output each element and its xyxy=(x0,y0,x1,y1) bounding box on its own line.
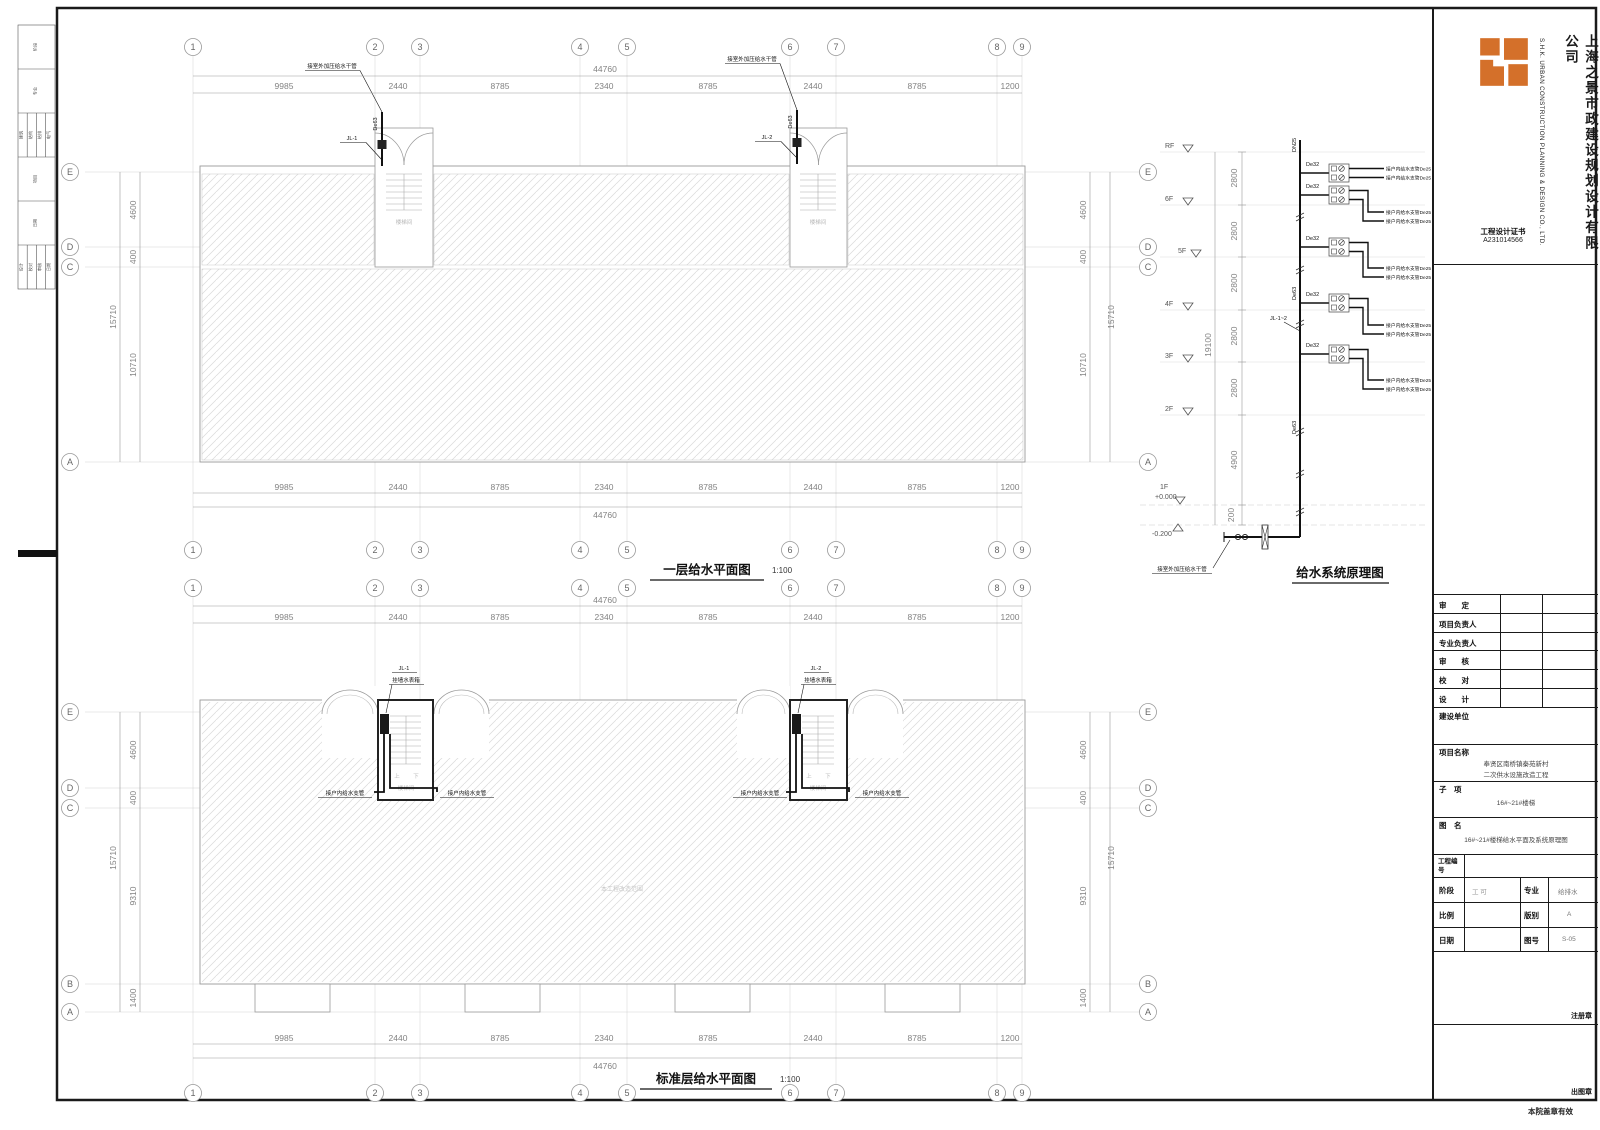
company-name-en: S.H.K. URBAN CONSTRUCTION PLANNING & DES… xyxy=(1538,38,1545,254)
cell-label: 图号 xyxy=(1524,935,1539,946)
major-value: 给排水 xyxy=(1558,886,1578,896)
section-label: 项目名称 xyxy=(1439,747,1469,758)
section-label: 图 名 xyxy=(1439,820,1462,831)
title-block: S.H.K. URBAN CONSTRUCTION PLANNING & DES… xyxy=(1432,8,1598,1100)
meter-box xyxy=(792,714,801,734)
dim: 8785 xyxy=(699,482,718,492)
dim: 400 xyxy=(1078,791,1088,805)
issue-stamp-area: 出图章 xyxy=(1434,1025,1598,1100)
section-label: 工程编号 xyxy=(1438,857,1462,875)
grid-label: 7 xyxy=(833,1088,838,1098)
client-section: 建设单位 xyxy=(1434,708,1598,745)
unit-branch-label: 接户内给水支管De25 xyxy=(1386,274,1431,281)
unit-branch-label: 接户内给水支管De25 xyxy=(1386,166,1431,173)
grid-label: A xyxy=(1145,457,1151,467)
row-label: 设 计 xyxy=(1439,694,1469,705)
scope-note: 本工程改造范围 xyxy=(601,885,643,893)
strip-cell: 阶段 xyxy=(32,42,39,51)
subitem-section: 子 项 16#~21#楼梯 xyxy=(1434,782,1598,818)
riser-tag: JL-2 xyxy=(811,666,822,672)
dim: 4600 xyxy=(1078,740,1088,759)
dim: 1400 xyxy=(128,988,138,1007)
dim-total: 15710 xyxy=(1106,305,1116,329)
strip-cell: 日期 xyxy=(33,219,39,227)
stair-up: 上 xyxy=(806,772,812,780)
branch-label: 接户内给水支管 xyxy=(448,789,487,797)
grid-label: 8 xyxy=(994,583,999,593)
floor-label: 1F xyxy=(1160,484,1168,491)
section-label: 子 项 xyxy=(1439,784,1462,795)
grid-label: 5 xyxy=(624,42,629,52)
grid-label: D xyxy=(67,242,74,252)
stair-up: 上 xyxy=(394,772,400,780)
branch-label: 接户内给水支管 xyxy=(326,789,365,797)
unit-branch-label: 接户内给水支管De25 xyxy=(1386,322,1431,329)
dim: 8785 xyxy=(491,81,510,91)
branch-pipe-label: De32 xyxy=(1306,292,1319,298)
dim: 9310 xyxy=(128,886,138,905)
schematic-title: 给水系统原理图 xyxy=(1296,565,1384,580)
row-label: 审 核 xyxy=(1439,656,1469,667)
schematic: RF 6F 5F 4F 3F 2F 1F +0.000 -0.200 2 xyxy=(1140,138,1431,583)
strip-cell: 电气 xyxy=(45,130,51,139)
grid-label: 4 xyxy=(577,42,582,52)
branch-label: 接户内给水支管 xyxy=(863,789,902,797)
drawing-name-value: 16#~21#楼梯给水平面及系统原理图 xyxy=(1434,834,1598,844)
validity-note: 本院盖章有效 xyxy=(1528,1106,1573,1117)
stair-label: 楼梯间 xyxy=(396,218,413,226)
dim-total: 19100 xyxy=(1203,333,1213,357)
meter-box xyxy=(380,714,389,734)
row-label: 专业负责人 xyxy=(1439,638,1477,649)
dim: 2440 xyxy=(804,81,823,91)
dim: 2440 xyxy=(389,81,408,91)
dim: 1200 xyxy=(1001,612,1020,622)
row-label: 审 定 xyxy=(1439,600,1469,611)
dim: 2800 xyxy=(1229,221,1239,240)
cert-number: A231014566 xyxy=(1458,237,1548,244)
drawing-canvas: 阶段 专业 建筑 结构 给排 电气 项目 日期 设计 校对 审核 日期 xyxy=(0,0,1600,1130)
stamp-label: 注册章 xyxy=(1571,1011,1592,1021)
dim-total: 15710 xyxy=(108,846,118,870)
pipe-size-label: De63 xyxy=(1292,287,1298,300)
strip-cell: 审核 xyxy=(36,262,43,271)
plan1: 楼梯间 De63 JL-1 接室外加压给水干管 楼梯间 xyxy=(62,38,1157,580)
dim-total: 44760 xyxy=(593,64,617,74)
dim: 9985 xyxy=(275,482,294,492)
dim: 2440 xyxy=(804,1033,823,1043)
cert-label: 工程设计证书 xyxy=(1458,226,1548,237)
grid-label: 3 xyxy=(417,583,422,593)
schematic-bottom: 接室外加压给水干管 xyxy=(1152,525,1300,574)
dim: 1200 xyxy=(1001,482,1020,492)
dim: 1400 xyxy=(1078,988,1088,1007)
project-section: 项目名称 奉贤区南桥镇秦苑新村 二次供水设施改造工程 xyxy=(1434,745,1598,782)
outdoor-main-label: 接室外加压给水干管 xyxy=(307,62,357,70)
dim: 8785 xyxy=(491,1033,510,1043)
dim: 4600 xyxy=(128,200,138,219)
branch-pipe-label: De32 xyxy=(1306,184,1319,190)
riser-tag: JL-2 xyxy=(762,135,773,141)
outdoor-main-label: 接室外加压给水干管 xyxy=(727,55,777,63)
row-design: 设 计 xyxy=(1434,689,1598,708)
pipe-size-label: DN25 xyxy=(1292,138,1298,152)
unit-branch-label: 接户内给水支管De25 xyxy=(1386,265,1431,272)
dim: 2800 xyxy=(1229,378,1239,397)
strip-cell: 项目 xyxy=(33,175,39,183)
dim: 8785 xyxy=(491,482,510,492)
scale-row: 比例 版别 A xyxy=(1434,903,1598,928)
dim: 2440 xyxy=(389,1033,408,1043)
grid-label: C xyxy=(1145,262,1152,272)
grid-label: 9 xyxy=(1019,583,1024,593)
floor-label: 6F xyxy=(1165,196,1173,203)
grid-label: 9 xyxy=(1019,545,1024,555)
grid-label: 5 xyxy=(624,545,629,555)
dim: 8785 xyxy=(908,1033,927,1043)
dim: 2340 xyxy=(595,1033,614,1043)
grid-label: A xyxy=(67,457,73,467)
dim: 2440 xyxy=(804,612,823,622)
company-name-cn: 上海之景市政建设规划设计有限公司 xyxy=(1560,34,1600,260)
cell-label: 阶段 xyxy=(1439,885,1454,896)
cell-label: 专业 xyxy=(1524,885,1539,896)
dim: 8785 xyxy=(699,1033,718,1043)
unit-branch-label: 接户内给水支管De25 xyxy=(1386,218,1431,225)
level-value: -0.200 xyxy=(1152,531,1172,538)
meter-box-label: 挂墙水表箱 xyxy=(804,676,832,684)
grid-label: 4 xyxy=(577,545,582,555)
company-section: S.H.K. URBAN CONSTRUCTION PLANNING & DES… xyxy=(1434,8,1598,265)
grid-label: B xyxy=(67,979,73,989)
grid-label: A xyxy=(1145,1007,1151,1017)
dim: 2340 xyxy=(595,612,614,622)
dim: 8785 xyxy=(908,81,927,91)
pipe-size-label: De63 xyxy=(1292,421,1298,434)
row-approve: 审 定 xyxy=(1434,595,1598,614)
meter-assemblies: De32 接户内给水支管De25 接户内给水支管De25 De32 接户内给水支… xyxy=(1300,162,1431,393)
dim: 8785 xyxy=(908,482,927,492)
project-name-line1: 奉贤区南桥镇秦苑新村 xyxy=(1434,758,1598,768)
dim: 2800 xyxy=(1229,326,1239,345)
grid-label: 6 xyxy=(787,42,792,52)
cell-label: 比例 xyxy=(1439,910,1454,921)
branch-label: 接户内给水支管 xyxy=(741,789,780,797)
company-logo xyxy=(1478,36,1530,88)
dim: 9985 xyxy=(275,612,294,622)
dim: 9985 xyxy=(275,1033,294,1043)
dim: 2800 xyxy=(1229,168,1239,187)
dim: 10710 xyxy=(1078,353,1088,377)
dim: 400 xyxy=(128,250,138,264)
floor-label: 3F xyxy=(1165,353,1173,360)
dim-total: 15710 xyxy=(108,305,118,329)
dim: 4900 xyxy=(1229,450,1239,469)
registration-stamp-area: 注册章 xyxy=(1434,952,1598,1025)
grid-label: C xyxy=(1145,803,1152,813)
level-value: +0.000 xyxy=(1155,494,1177,501)
dim: 4600 xyxy=(128,740,138,759)
pipe-size-label: De63 xyxy=(373,117,379,130)
grid-label: 2 xyxy=(372,1088,377,1098)
plan1-scale: 1:100 xyxy=(772,566,793,575)
strip-cell: 日期 xyxy=(46,263,52,271)
grid-label: 4 xyxy=(577,1088,582,1098)
branch-pipe-label: De32 xyxy=(1306,343,1319,349)
section-label: 建设单位 xyxy=(1439,711,1469,722)
grid-label: D xyxy=(67,783,74,793)
plan1-title: 一层给水平面图 xyxy=(663,562,751,577)
dim: 9985 xyxy=(275,81,294,91)
dim: 8785 xyxy=(699,612,718,622)
drawing-sheet: 阶段 专业 建筑 结构 给排 电气 项目 日期 设计 校对 审核 日期 xyxy=(0,0,1600,1130)
stair-down: 下 xyxy=(413,773,419,780)
strip-cell: 设计 xyxy=(18,263,25,271)
stair-label: 楼梯间 xyxy=(810,218,827,226)
stair-down: 下 xyxy=(825,773,831,780)
grid-label: 3 xyxy=(417,545,422,555)
riser-name: JL-1~2 xyxy=(1270,316,1287,322)
meter-box-label: 挂墙水表箱 xyxy=(392,676,420,684)
grid-label: D xyxy=(1145,783,1152,793)
drawing-no-value: S-05 xyxy=(1562,936,1576,943)
strip-cell: 建筑 xyxy=(18,130,25,139)
grid-label: E xyxy=(67,167,73,177)
job-no-section: 工程编号 xyxy=(1434,855,1598,878)
grid-label: C xyxy=(67,803,74,813)
strip-cell: 校对 xyxy=(27,263,34,271)
dim-total: 44760 xyxy=(593,510,617,520)
dim: 9310 xyxy=(1078,886,1088,905)
unit-branch-label: 接户内给水支管De25 xyxy=(1386,386,1431,393)
grid-label: 3 xyxy=(417,42,422,52)
strip-cell: 专业 xyxy=(32,87,39,95)
unit-branch-label: 接户内给水支管De25 xyxy=(1386,331,1431,338)
strip-cell: 给排 xyxy=(36,130,43,139)
grid-label: E xyxy=(1145,707,1151,717)
dim: 2440 xyxy=(389,612,408,622)
plan2-scale: 1:100 xyxy=(780,1075,801,1084)
grid-label: 1 xyxy=(190,42,195,52)
riser-tag: JL-1 xyxy=(399,666,410,672)
grid-label: 8 xyxy=(994,42,999,52)
date-row: 日期 图号 S-05 xyxy=(1434,928,1598,952)
unit-branch-label: 接户内给水支管De25 xyxy=(1386,209,1431,216)
stage-value: 工 可 xyxy=(1472,886,1487,896)
grid-label: 7 xyxy=(833,545,838,555)
grid-label: B xyxy=(1145,979,1151,989)
pipe-size-label: De63 xyxy=(788,115,794,128)
dim: 2440 xyxy=(804,482,823,492)
dim: 2800 xyxy=(1229,273,1239,292)
dim: 200 xyxy=(1226,508,1236,522)
dim: 400 xyxy=(128,791,138,805)
branch-pipe-label: De32 xyxy=(1306,162,1319,168)
grid-label: 5 xyxy=(624,1088,629,1098)
cell-label: 日期 xyxy=(1439,935,1454,946)
grid-label: 6 xyxy=(787,1088,792,1098)
row-discipline-lead: 专业负责人 xyxy=(1434,633,1598,652)
riser-tag: JL-1 xyxy=(347,136,358,142)
strip-cell: 结构 xyxy=(27,131,34,139)
grid-label: 8 xyxy=(994,1088,999,1098)
grid-label: 9 xyxy=(1019,1088,1024,1098)
grid-label: 2 xyxy=(372,583,377,593)
edition-value: A xyxy=(1567,911,1571,918)
grid-label: 8 xyxy=(994,545,999,555)
dim: 8785 xyxy=(491,612,510,622)
floor-levels: RF 6F 5F 4F 3F 2F 1F +0.000 -0.200 xyxy=(1152,143,1201,538)
drawing-name-section: 图 名 16#~21#楼梯给水平面及系统原理图 xyxy=(1434,818,1598,855)
grid-label: 6 xyxy=(787,583,792,593)
grid-label: A xyxy=(67,1007,73,1017)
dim: 8785 xyxy=(908,612,927,622)
grid-label: D xyxy=(1145,242,1152,252)
subitem-value: 16#~21#楼梯 xyxy=(1434,797,1598,807)
row-label: 校 对 xyxy=(1439,675,1469,686)
grid-label: 5 xyxy=(624,583,629,593)
grid-label: 3 xyxy=(417,1088,422,1098)
dim: 2340 xyxy=(595,81,614,91)
riser-jl1: De63 JL-1 接室外加压给水干管 xyxy=(305,62,387,166)
floor-label: 4F xyxy=(1165,301,1173,308)
plan2: 上 下 楼梯间 JL-1 挂墙水表箱 接户内给水支管 接户内给水支管 xyxy=(62,580,1157,1102)
grid-label: 1 xyxy=(190,1088,195,1098)
grid-label: 1 xyxy=(190,583,195,593)
grid-label: 2 xyxy=(372,545,377,555)
branch-pipe-label: De32 xyxy=(1306,236,1319,242)
grid-label: 7 xyxy=(833,583,838,593)
row-project-lead: 项目负责人 xyxy=(1434,614,1598,633)
grid-label: 1 xyxy=(190,545,195,555)
dim-total: 15710 xyxy=(1106,846,1116,870)
dim: 10710 xyxy=(128,353,138,377)
grid-label: 9 xyxy=(1019,42,1024,52)
dim: 400 xyxy=(1078,250,1088,264)
floor-label: 5F xyxy=(1178,248,1186,255)
row-proof: 校 对 xyxy=(1434,670,1598,689)
dim: 1200 xyxy=(1001,1033,1020,1043)
dim: 2340 xyxy=(595,482,614,492)
stage-row: 阶段 工 可 专业 给排水 xyxy=(1434,878,1598,903)
grid-label: E xyxy=(1145,167,1151,177)
plan2-title: 标准层给水平面图 xyxy=(655,1071,756,1086)
dim: 8785 xyxy=(699,81,718,91)
row-review: 审 核 xyxy=(1434,651,1598,670)
blank-panel xyxy=(1434,265,1598,595)
outdoor-main-label: 接室外加压给水干管 xyxy=(1157,565,1207,573)
signature-strip: 阶段 专业 建筑 结构 给排 电气 项目 日期 设计 校对 审核 日期 xyxy=(18,25,55,289)
row-label: 项目负责人 xyxy=(1439,619,1477,630)
dim-total: 44760 xyxy=(593,595,617,605)
dim: 4600 xyxy=(1078,200,1088,219)
grid-label: C xyxy=(67,262,74,272)
grid-label: E xyxy=(67,707,73,717)
stair-core-2: 楼梯间 xyxy=(790,128,847,267)
grid-label: 7 xyxy=(833,42,838,52)
cell-label: 版别 xyxy=(1524,910,1539,921)
dim: 1200 xyxy=(1001,81,1020,91)
unit-branch-label: 接户内给水支管De25 xyxy=(1386,175,1431,182)
grid-label: 2 xyxy=(372,42,377,52)
dim-total: 44760 xyxy=(593,1061,617,1071)
unit-branch-label: 接户内给水支管De25 xyxy=(1386,377,1431,384)
project-name-line2: 二次供水设施改造工程 xyxy=(1434,769,1598,779)
floor-label: RF xyxy=(1165,143,1174,150)
stamp-label: 出图章 xyxy=(1571,1087,1592,1097)
grid-label: 6 xyxy=(787,545,792,555)
grid-label: 4 xyxy=(577,583,582,593)
floor-label: 2F xyxy=(1165,406,1173,413)
dim: 2440 xyxy=(389,482,408,492)
